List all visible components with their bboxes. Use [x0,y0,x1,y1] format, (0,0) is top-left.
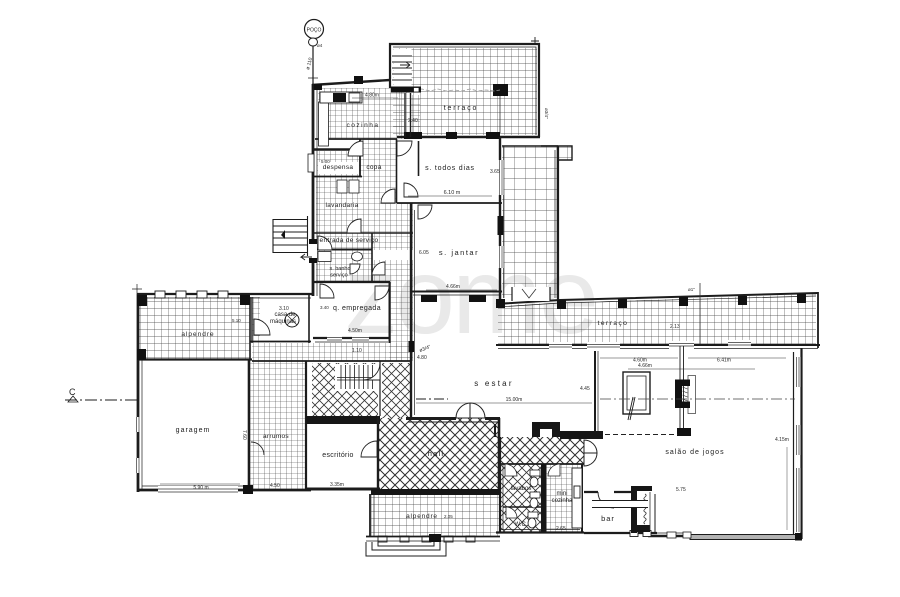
svg-text:C: C [69,387,76,397]
svg-text:arrumos: arrumos [263,433,289,440]
svg-text:terraço: terraço [598,320,629,327]
svg-text:5.90 m: 5.90 m [193,485,208,491]
svg-text:alpendre: alpendre [406,513,438,520]
svg-text:W.C.: W.C. [515,522,528,528]
svg-text:lavandaria: lavandaria [326,202,359,209]
svg-text:4.50: 4.50 [270,483,280,489]
svg-text:lavabos: lavabos [511,486,532,492]
svg-text:despensa: despensa [323,164,354,171]
svg-text:ø3/4": ø3/4" [544,108,549,119]
svg-text:POÇO: POÇO [307,28,322,34]
svg-text:cozinha: cozinha [552,498,573,504]
svg-text:salão de jogos: salão de jogos [665,449,724,456]
svg-text:casa de: casa de [274,312,296,318]
svg-text:4.80: 4.80 [417,355,427,361]
svg-text:copa: copa [366,164,381,171]
svg-text:6.10 m: 6.10 m [444,190,461,196]
svg-text:2.65: 2.65 [556,526,566,532]
svg-text:3.35m: 3.35m [330,482,344,488]
svg-text:mini: mini [556,491,567,497]
svg-text:q. empregada: q. empregada [333,305,381,312]
svg-text:4.60m: 4.60m [633,358,647,364]
svg-text:15.00m: 15.00m [506,397,523,403]
svg-text:s. jantar: s. jantar [439,248,479,257]
svg-text:4.66m: 4.66m [446,284,460,290]
svg-text:s. todos dias: s. todos dias [425,165,475,172]
svg-text:4.50m: 4.50m [348,328,362,334]
svg-text:5.10: 5.10 [232,318,241,323]
svg-text:3.10: 3.10 [279,306,289,312]
svg-text:5.75: 5.75 [676,487,686,493]
svg-text:escritório: escritório [322,452,353,459]
svg-text:ø1": ø1" [688,287,695,292]
svg-text:terraço: terraço [444,105,478,112]
svg-text:4.45: 4.45 [580,386,590,392]
svg-text:6.41m: 6.41m [717,358,731,364]
svg-text:entrada de serviço: entrada de serviço [320,237,379,244]
svg-text:2.13: 2.13 [670,324,680,330]
svg-text:alpendre: alpendre [181,331,214,338]
svg-text:7.60: 7.60 [241,430,247,440]
svg-text:4.66m: 4.66m [638,363,652,369]
svg-text:garagem: garagem [176,427,211,434]
svg-text:2.05: 2.05 [444,514,453,519]
svg-text:3.40: 3.40 [320,305,329,310]
svg-text:4.15m: 4.15m [775,437,789,443]
svg-text:hall: hall [428,449,444,458]
svg-text:5.00: 5.00 [321,159,330,164]
svg-text:2.40: 2.40 [408,118,418,124]
svg-text:6.05: 6.05 [419,250,429,256]
svg-text:3.65: 3.65 [490,169,500,175]
svg-text:s. banho: s. banho [329,266,350,272]
svg-text:bar: bar [601,514,615,523]
svg-text:s estar: s estar [474,379,513,388]
svg-text:cozinha: cozinha [347,122,380,129]
svg-text:serviço: serviço [330,273,347,279]
svg-text:4.80m: 4.80m [365,93,379,99]
svg-text:1.10: 1.10 [352,348,362,354]
svg-text:máquinas: máquinas [270,319,296,325]
svg-text:ø4: ø4 [317,43,323,48]
